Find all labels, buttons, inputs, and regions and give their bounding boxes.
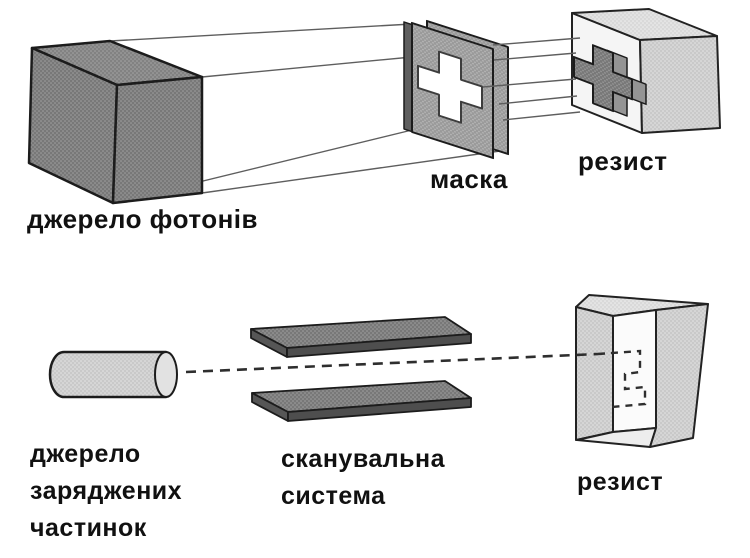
deflection-plate-top xyxy=(251,317,471,357)
cylinder-body xyxy=(50,352,166,397)
photon-source-right-face xyxy=(113,77,202,203)
resist-box-left-wall xyxy=(576,307,613,440)
mask-left-edge xyxy=(404,22,412,132)
beam-dashed-line xyxy=(186,354,598,372)
lithography-diagram: джерело фотонів маска резист джерело зар… xyxy=(0,0,750,558)
label-scanning-system-line2: система xyxy=(281,484,386,509)
resist-box-right-wall xyxy=(650,304,708,447)
photon-ray xyxy=(499,96,577,104)
photon-ray xyxy=(503,112,580,120)
label-ebeam-resist: резист xyxy=(577,470,663,495)
photon-ray xyxy=(110,24,412,41)
label-particle-source-line3: частинок xyxy=(30,516,147,541)
photon-ray xyxy=(493,38,580,45)
mask-assembly xyxy=(404,21,508,158)
label-scanning-system-line1: сканувальна xyxy=(281,447,445,472)
photo-resist-right-face xyxy=(640,36,720,133)
label-particle-source-line1: джерело xyxy=(30,442,141,467)
label-particle-source-line2: заряджених xyxy=(30,479,182,504)
ebeam-resist-box xyxy=(576,295,708,447)
photon-source-block xyxy=(29,41,202,203)
label-photon-source: джерело фотонів xyxy=(27,206,258,232)
resist-box-inner-face xyxy=(613,310,656,432)
cylinder-end-cap xyxy=(155,352,177,397)
deflection-plate-bottom xyxy=(252,381,471,421)
label-mask: маска xyxy=(430,166,508,192)
label-photo-resist: резист xyxy=(578,148,667,174)
particle-source-cylinder xyxy=(50,352,177,397)
photon-ray xyxy=(202,57,412,77)
